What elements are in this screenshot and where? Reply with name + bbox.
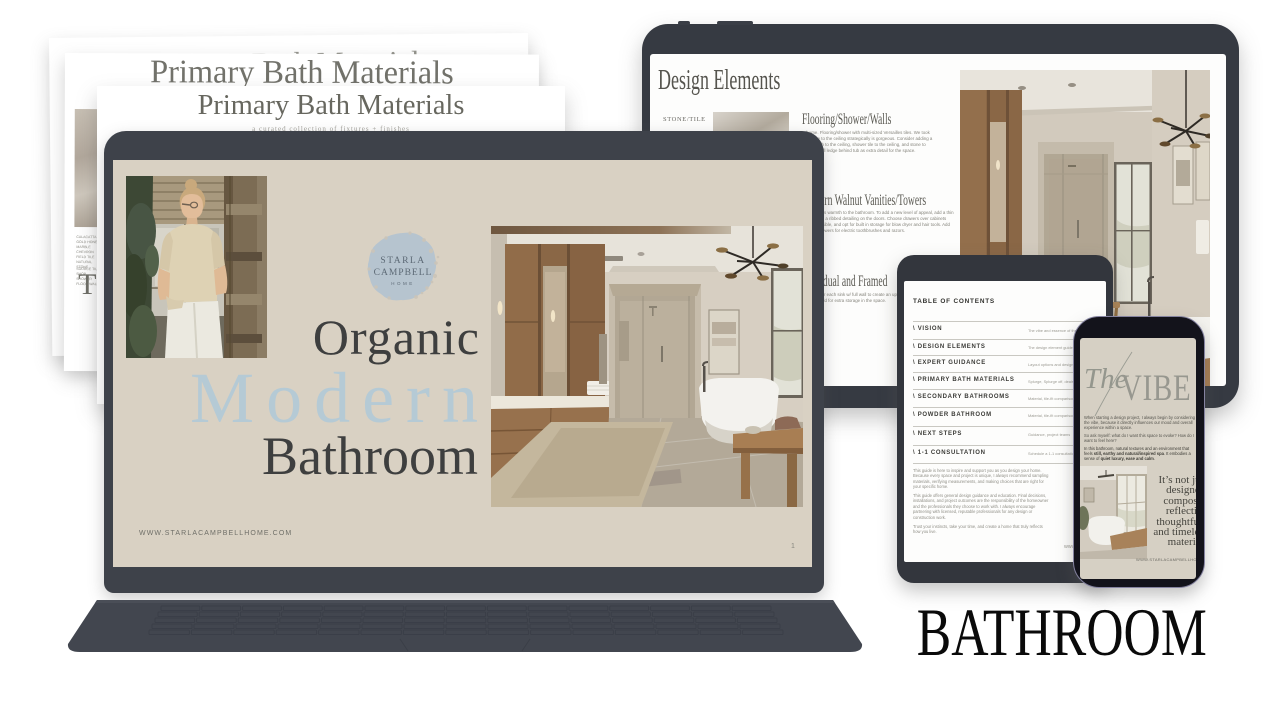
svg-text:HOME: HOME — [391, 281, 415, 286]
svg-text:CAMPBELL: CAMPBELL — [374, 268, 433, 278]
svg-text:STARLA: STARLA — [380, 256, 425, 266]
